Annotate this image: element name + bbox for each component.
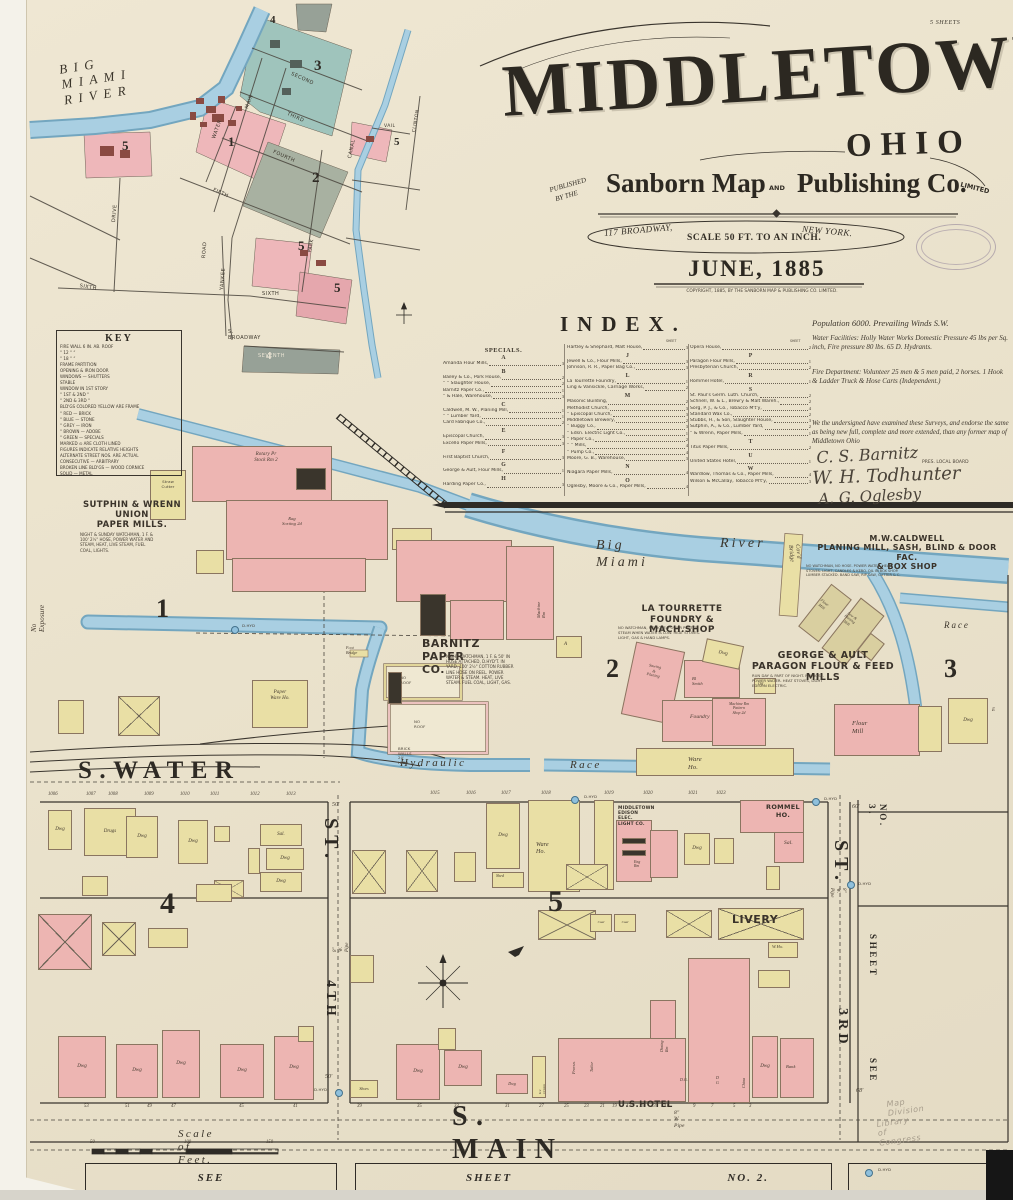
map-label: Ice Cream [538,1084,546,1094]
hydrant-icon [571,796,579,804]
index-entry-name: Hartley & Shephard, Malt House, [567,345,642,351]
index-dotted-leader [487,487,561,488]
map-building [352,850,386,894]
index-dotted-leader [486,425,560,426]
map-building: Dwg [220,1044,264,1098]
index-dotted-leader [616,422,684,423]
map-building [450,600,504,640]
index-entry-sheet: 1 [562,468,564,474]
map-building: Dwg [396,1044,440,1100]
map-label: 50' [332,802,339,809]
map-label: 8" W. Pipe [674,1110,685,1129]
index-entry-name: M [625,393,630,399]
index-row: Excello Paper Mills, 3 [443,441,564,447]
map-key-legend: KEY FIRE WALL 6 IN. AB. ROOF“ 12 “ ““ 18… [56,330,182,476]
publisher-and: AND [769,184,785,192]
map-label: Bank [786,1064,796,1069]
map-building [406,850,438,892]
map-label: ST. [828,840,852,886]
index-dotted-leader [587,448,684,449]
index-row: Presbyterian Church, 2 [690,365,811,371]
map-building [666,910,712,938]
map-label: 53 [84,1104,89,1110]
inset-label: 4 [270,14,276,27]
building-label: Dwg [132,1068,141,1074]
map-label: D.HYD [824,797,837,802]
map-label: 11 [664,1104,668,1110]
map-label: 1011 [210,792,219,798]
building-label: Dwg [692,846,701,852]
building-label: Sal. [277,832,285,838]
index-dotted-leader [482,418,561,419]
map-label: NO ROOF [400,676,412,685]
map-label: 1017 [501,791,511,797]
map-building [636,748,794,776]
map-label: W.Ho. [772,944,784,949]
building-label: Dwg [458,1065,467,1071]
index-dotted-leader [636,369,685,370]
inset-label: VAIL [384,124,396,129]
index-dotted-leader [769,483,808,484]
map-label: Rotary Pr Stock Rm 2 [234,452,298,464]
building-label: Dwg [498,833,507,839]
map-label: 3RD [833,1008,850,1048]
index-entry-name: E [502,428,506,434]
index-row: Niagara Paper Mills, 4 [567,470,688,476]
index-entry-sheet: 3 [686,456,688,462]
map-building [454,852,476,882]
index-entry-sheet: 3 [562,441,564,447]
map-label: NIGHT WATCHMAN, 1 F. & 50' IN HOSE ATTAC… [446,654,550,685]
map-building [252,680,308,728]
map-building [650,830,678,878]
map-label: 39 [357,1104,362,1110]
map-date: JUNE, 1885 [688,256,826,282]
map-label: 9 [693,1104,695,1110]
index-row: “ & Hale, Warehouse, 3 [443,394,564,400]
key-lines: FIRE WALL 6 IN. AB. ROOF“ 12 “ ““ 18 “ “… [60,344,178,477]
index-dotted-leader [485,439,561,440]
map-label: LIVERY [732,914,778,927]
hydrant-icon [812,798,820,806]
index-entry-name: J [626,353,629,359]
index-entry-name: Card Fabrique Co., [443,420,485,426]
map-building: Dwg [684,833,710,865]
building-label: Coal [598,921,605,925]
map-label: Dining Rm [660,1040,669,1052]
index-entry-sheet: 3 [562,455,564,461]
index-entry-sheet: 1 [809,459,811,465]
index-row: Titus Paper Mills, 2 [690,445,811,451]
map-label: D.HYD [858,882,871,887]
map-label: 3 [944,654,957,685]
building-label: Coal [622,921,629,925]
index-dotted-leader [595,454,685,455]
map-building: Dwg [496,1074,528,1094]
index-row: United States Hotel, 1 [690,459,811,465]
index-dotted-leader [626,435,685,436]
map-building [556,636,582,658]
index-dotted-leader [775,477,808,478]
index-dotted-leader [626,460,685,461]
index-dotted-leader [774,422,808,423]
building-label: Dwg [760,1064,769,1070]
index-entry-name: Rommel Hotel, [690,379,724,385]
inset-label: 5 [394,136,400,149]
map-label: Straw Cutter [150,480,186,489]
map-label: MIDDLETOWN EDISON ELEC. LIGHT CO. [618,806,655,827]
map-label: BRICK WALLS 20' HIGH [398,747,412,765]
building-label: Dwg [289,1065,298,1071]
index-entry-sheet: 1 [809,379,811,385]
scan-corner-black [986,1150,1013,1200]
map-building: Dwg [444,1050,482,1086]
map-label: Tailor [590,1062,595,1072]
map-building [758,970,790,988]
index-dotted-leader [733,416,807,417]
map-label: Shed [496,874,504,879]
index-entry-name: First Baptist Church, [443,455,489,461]
building-label: Dwg [508,1082,516,1086]
index-dotted-leader [608,404,684,405]
index-entry-name: P [749,353,753,359]
index-entry-sheet: 2 [562,420,564,426]
map-building [148,928,188,948]
map-building [248,848,260,874]
index-dotted-leader [725,383,808,384]
map-building [196,884,232,902]
map-building: Dwg [116,1044,158,1098]
ink-mark [508,946,524,957]
index-entry-name: Wilson & McCallay, Tobacco M't'y, [690,479,768,485]
margin-sheet-label: SHEET [466,1172,512,1184]
key-title: KEY [60,333,178,344]
map-building [226,500,388,560]
index-row: Opera House, 2 [690,345,811,351]
map-label: 1020 [643,791,653,797]
map-building: Dwg [162,1030,200,1098]
margin-box-see: SEE [85,1163,337,1192]
map-building: Dwg [58,1036,106,1098]
map-label: 31 [505,1104,510,1110]
map-building [438,1028,456,1050]
building-label: Drugs [104,829,117,835]
map-building [38,914,92,970]
building-label: Dwg [77,1064,86,1070]
map-label: 60' [852,804,859,811]
index-entry-name: Moore, G. B., Warehouse, [567,456,625,462]
index-entry-sheet: 3 [562,482,564,488]
map-building: Shoes [350,1080,378,1098]
map-label: SEE [867,1058,878,1083]
map-label: ST. [318,818,342,864]
index-entry-name: Titus Paper Mills, [690,445,729,451]
map-building: Sal. [260,824,302,846]
map-label: 1 [156,594,169,625]
map-label: No Exposure [30,605,47,632]
map-label: 27 [539,1104,544,1110]
index-entry-name: L [626,373,630,379]
map-label: A [564,642,567,648]
scan-edge-left [0,0,27,1200]
map-building [622,838,646,844]
index-dotted-leader [739,369,808,370]
hydrant-icon [847,881,855,889]
index-dotted-leader [613,416,685,417]
map-label: Flour Mill [852,720,867,735]
map-label: SUTPHIN & WRENN UNION PAPER MILLS. [76,500,188,530]
index-entry-name: H [501,476,506,482]
index-dotted-leader [722,349,807,350]
map-label: SHEET [867,934,878,978]
map-label: Eng Rm [634,860,640,869]
index-dotted-leader [647,488,685,489]
index-entry-name: U [748,453,752,459]
map-label: 47 [171,1104,176,1110]
index-row: Rommel Hotel, 1 [690,379,811,385]
map-building [714,838,734,864]
map-label: Ware Ho. [536,842,549,856]
hydrant-icon [335,1089,343,1097]
index-entry-name: “ & Wrenn, Paper Mills, [690,431,743,437]
index-entry-sheet: 3 [809,479,811,485]
map-label: 3 [749,1104,751,1110]
map-building [196,550,224,574]
index-dotted-leader [490,459,560,460]
index-row: SPECIALS. [443,347,564,354]
map-label: 50' [325,1074,332,1081]
index-row: Oglesby, Moore & Co., Paper Mills, 4 [567,484,688,490]
index-entry-name: Presbyterian Church, [690,365,738,371]
index-row: First Baptist Church, 3 [443,455,564,461]
map-building: Coal [590,914,612,932]
map-building [918,706,942,752]
index-row: Hartley & Shephard, Malt House, 3 [567,345,688,351]
map-building [58,700,84,734]
publisher-name-1: Sanborn Map [606,168,766,199]
map-label: 51 [125,1104,130,1110]
map-label: D G [716,1076,719,1085]
map-building: Dwg [48,810,72,850]
map-label: 15 [639,1104,644,1110]
index-row: George & Ault, Flour Mills, 1 [443,468,564,474]
index-dotted-leader [504,473,561,474]
map-label: Provsn. [572,1061,577,1074]
index-row: Wilson & McCallay, Tobacco M't'y, 3 [690,479,811,485]
index-dotted-leader [763,410,808,411]
map-label: Scale of Feet. [178,1128,214,1167]
margin-box-sheet-no2: SHEET NO. 2. [355,1163,832,1192]
index-dotted-leader [730,449,808,450]
map-label: 45 [239,1104,244,1110]
map-label: E [992,708,995,714]
index-dotted-leader [643,349,684,350]
inset-label: 1 [228,134,235,149]
building-label: Dwg [188,839,197,845]
index-column-1: SPECIALS. A Amanda Flour Mills, 3 B Bail… [443,345,564,489]
sanborn-map-sheet: Dwg Dwg Dwg Drugs [0,0,1013,1200]
index-entry-sheet: 2 [809,365,811,371]
map-label: 1009 [144,792,154,798]
index-entry-sheet: 1 [809,431,811,437]
map-scale-note: SCALE 50 FT. TO AN INCH. [687,233,821,243]
index-row: Moore, G. B., Warehouse, 3 [567,456,688,462]
map-label: Cov'd Bridge [786,544,802,562]
index-row: Johnson, R. R., Paper Bag Co., 3 [567,365,688,371]
building-label: Dwg [963,718,972,724]
map-label: 21 [600,1104,605,1110]
map-building [118,696,160,736]
index-entry-name: F [502,449,506,455]
index-dotted-leader [614,474,685,475]
building-label: Dwg [280,856,289,862]
building-label: Dwg [718,650,728,657]
index-row: “ & Wrenn, Paper Mills, 1 [690,431,811,437]
index-dotted-leader [617,383,685,384]
index-entry-name: Harding Paper Co., [443,482,486,488]
map-label: S. MAIN [452,1100,563,1166]
index-row: Harding Paper Co., 3 [443,482,564,488]
map-label: Foot Bridge [346,646,357,655]
index-entry-name: “ & Hale, Warehouse, [443,394,492,400]
map-building [420,594,446,636]
map-label: 49 [147,1104,152,1110]
margin-no2-label: NO. 2. [727,1172,769,1184]
map-label: 68' [856,1088,863,1095]
map-label: 17 [626,1104,631,1110]
map-label: 1015 [430,791,440,797]
inset-label: 4 [266,350,272,363]
index-entry-name: N [625,464,629,470]
map-label: NO ROOF [414,720,426,729]
map-label: 2 [606,654,619,685]
index-dotted-leader [491,386,560,387]
inset-label: 5 [298,238,305,253]
map-building: Dwg [948,698,988,744]
index-dotted-leader [760,397,808,398]
index-entry-name: T [749,439,753,445]
inset-label: 5 [122,138,129,153]
map-label: Machine Rm [536,602,547,618]
map-label: 50 [90,1140,95,1146]
index-entry-name: A [501,355,505,361]
index-dotted-leader [780,404,807,405]
index-dotted-leader [493,398,561,399]
page-title-state: OHIO [845,124,972,165]
map-building: Dwg [486,803,520,869]
index-dotted-leader [488,445,561,446]
map-building [350,955,374,983]
index-dotted-leader [737,463,808,464]
map-building: Dwg [274,1036,314,1100]
map-building [396,540,512,602]
publisher-name-2: Publishing Co. [797,168,967,199]
map-label: 8" W. Pipe [333,942,351,952]
map-building: Dwg [752,1036,778,1098]
map-label: 13 [651,1104,656,1110]
index-row: Amanda Flour Mills, 3 [443,361,564,367]
map-label: 5 [548,884,563,919]
map-building: Dwg [260,872,302,892]
map-label: S.WATER [78,756,241,786]
map-label: ROMMEL HO. [762,804,804,819]
map-label: Off [758,682,763,687]
map-building [102,922,136,956]
map-label: 5 [733,1104,735,1110]
map-label: 1021 [688,791,698,797]
index-entry-sheet: 3 [686,365,688,371]
index-entry-name: B [502,369,506,375]
index-entry-name: Niagara Paper Mills, [567,470,613,476]
index-sheet-caption: SHEET [790,339,800,343]
map-label: D.HYD [314,1088,327,1093]
map-label: 19 [612,1104,617,1110]
map-label: 25 [564,1104,569,1110]
map-label: 8" W. Pipe [828,888,846,898]
index-entry-name: Ling & Vansickle, Carriage Works, [567,385,644,391]
map-label: Machine Rm Pattern Shop 2d [712,702,766,715]
map-building [834,704,920,756]
map-label: D.HYD [584,795,597,800]
map-building [214,826,230,842]
map-building [296,468,326,490]
map-label: Paper Ware Ho. [254,690,306,702]
index-entry-name: R [748,373,752,379]
map-building: Dwg [266,848,304,870]
index-entry-name: United States Hotel, [690,459,736,465]
map-building [622,850,646,856]
index-dotted-leader [736,363,808,364]
key-line: SOLID — METAL [60,471,178,477]
map-label: Race [570,759,602,772]
water-facilities-note: Water Facilities: Holly Water Works Dome… [812,334,1010,352]
building-label: Dwg [276,879,285,885]
map-label: Bl Smith [692,676,703,687]
map-label: 150 [266,1140,273,1146]
map-label: 1007 [86,792,96,798]
building-label: Dwg [413,1069,422,1075]
map-building [566,864,608,890]
compass-rose-icon [418,954,468,1008]
building-label: Dwg [176,1061,185,1067]
inset-label: 2 [312,170,320,188]
map-label: Sal. [784,840,793,846]
map-label: 1019 [604,791,614,797]
scan-edge-bottom [0,1190,1013,1200]
index-dotted-leader [485,392,561,393]
building-label: Dwg [137,834,146,840]
map-building: Dwg [178,820,208,864]
library-stamp-icon [916,224,996,270]
index-entry-name: SPECIALS. [485,347,522,354]
building-label: Dwg [55,827,64,833]
index-entry-sheet: 3 [562,394,564,400]
map-building: Coal [614,914,636,932]
fire-department-note: Fire Department: Volunteer 25 men & 5 me… [812,368,1010,386]
margin-see-label: SEE [198,1172,225,1184]
index-dotted-leader [597,429,685,430]
map-building [538,910,596,940]
map-label: 23 [584,1104,589,1110]
map-label: 1010 [180,792,190,798]
index-entry-name: Excello Paper Mills, [443,441,487,447]
map-label: NIGHT & SUNDAY WATCHMAN, 1 F. & 100' 2½"… [80,532,188,553]
index-entry-name: Oglesby, Moore & Co., Paper Mills, [567,484,646,490]
index-dotted-leader [645,390,685,391]
map-label: 4TH [321,980,338,1020]
map-label: 1023 [716,791,726,797]
index-row: Ling & Vansickle, Carriage Works, 2 [567,385,688,391]
